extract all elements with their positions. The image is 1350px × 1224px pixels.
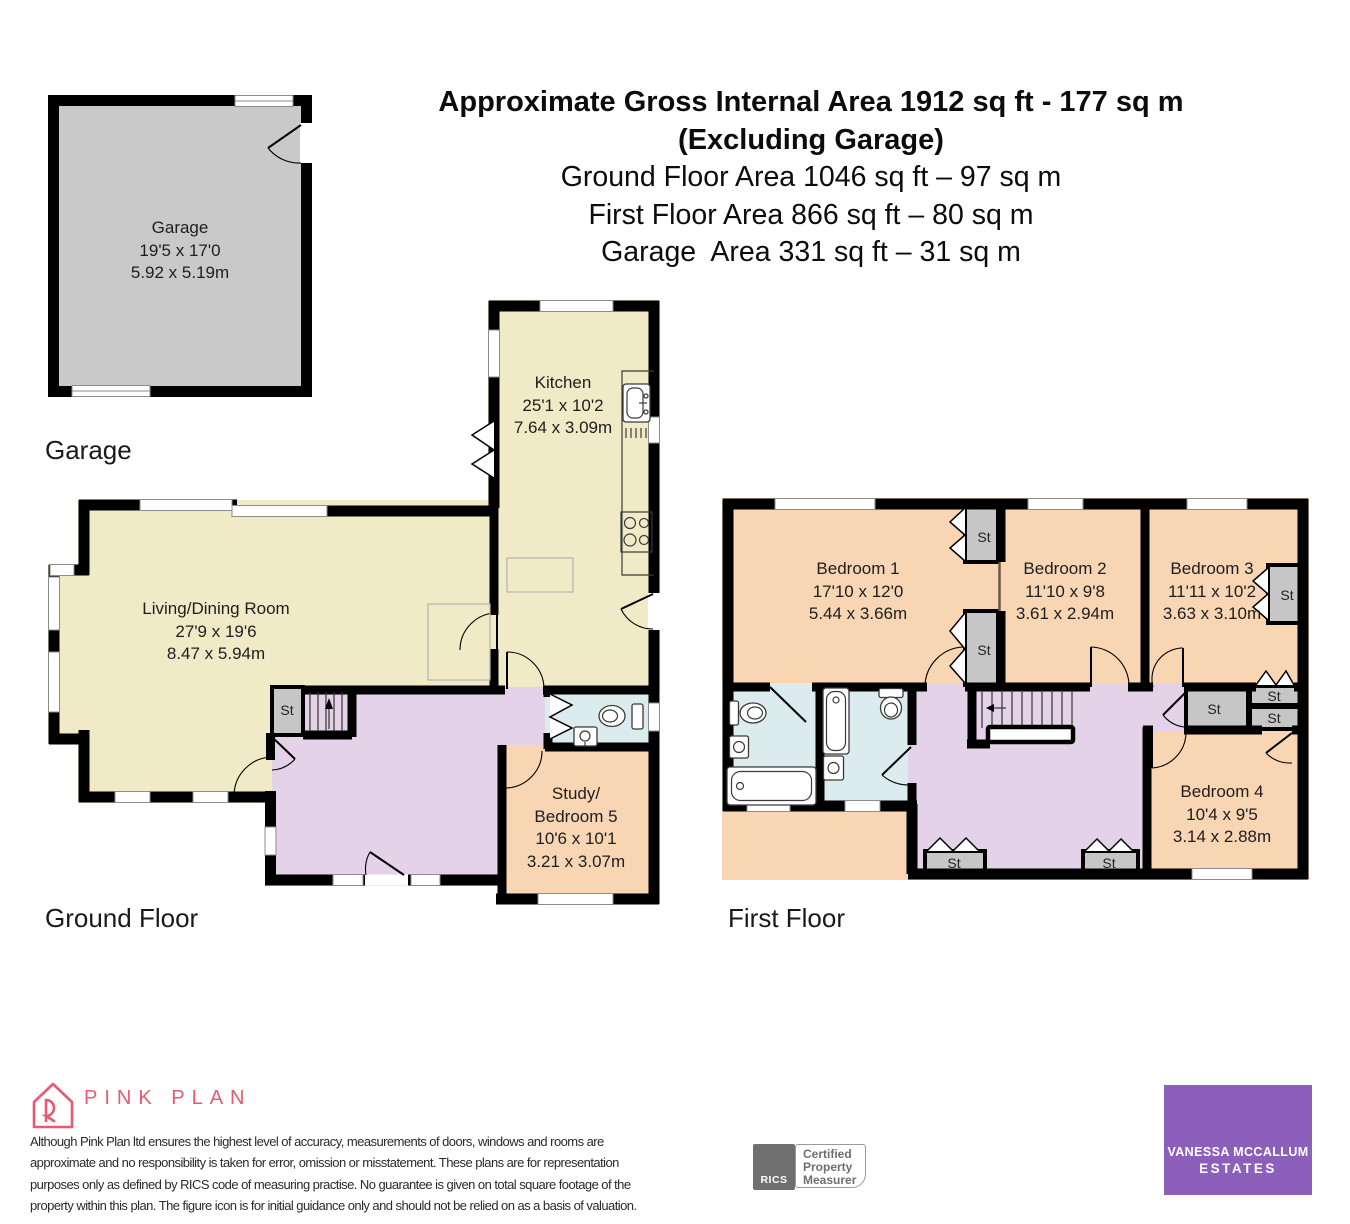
bedroom4-label: Bedroom 4 10'4 x 9'5 3.14 x 2.88m xyxy=(1173,781,1271,849)
floorplan-page: Approximate Gross Internal Area 1912 sq … xyxy=(0,0,1350,1224)
gross-area-line: Approximate Gross Internal Area 1912 sq … xyxy=(411,84,1211,122)
kitchen-label: Kitchen 25'1 x 10'2 7.64 x 3.09m xyxy=(514,372,612,440)
pink-plan-brand: PINK PLAN xyxy=(84,1087,251,1110)
storage-label: St xyxy=(280,702,293,718)
disclaimer: Although Pink Plan ltd ensures the highe… xyxy=(30,1131,637,1216)
study-bedroom5-label: Study/ Bedroom 5 10'6 x 10'1 3.21 x 3.07… xyxy=(527,783,625,873)
storage-label: St xyxy=(1280,587,1293,603)
ensuite-bath-icon xyxy=(727,767,816,805)
bathroom-sink-icon xyxy=(824,756,844,780)
ground-floor-caption: Ground Floor xyxy=(45,903,198,934)
ground-floor-area-line: Ground Floor Area 1046 sq ft – 97 sq m xyxy=(411,159,1211,197)
kitchen-floor xyxy=(488,300,660,692)
agency-logo: VANESSA MCCALLUM ESTATES xyxy=(1164,1085,1312,1195)
garage-area-line: Garage Area 331 sq ft – 31 sq m xyxy=(411,234,1211,272)
living-dining-label: Living/Dining Room 27'9 x 19'6 8.47 x 5.… xyxy=(142,598,289,666)
ensuite-toilet-icon xyxy=(730,701,767,725)
bedroom2-label: Bedroom 2 11'10 x 9'8 3.61 x 2.94m xyxy=(1016,558,1114,626)
bedroom1-label: Bedroom 1 17'10 x 12'0 5.44 x 3.66m xyxy=(809,558,907,626)
storage-label: St xyxy=(947,855,960,871)
bathroom-toilet-icon xyxy=(879,689,903,720)
rics-certified-box: Certified Property Measurer xyxy=(795,1144,866,1188)
wc-sink-icon xyxy=(574,727,597,746)
storage-label: St xyxy=(1267,710,1280,726)
ensuite-sink-icon xyxy=(730,736,749,758)
storage-label: St xyxy=(1267,688,1280,704)
first-floor-caption: First Floor xyxy=(728,903,845,934)
bedroom3-label: Bedroom 3 11'11 x 10'2 3.63 x 3.10m xyxy=(1163,558,1261,626)
area-summary: Approximate Gross Internal Area 1912 sq … xyxy=(411,84,1211,272)
storage-label: St xyxy=(1207,701,1220,717)
garage-room-label: Garage 19'5 x 17'0 5.92 x 5.19m xyxy=(131,217,229,285)
storage-label: St xyxy=(977,642,990,658)
bathroom-bath-icon xyxy=(823,688,849,754)
banister xyxy=(988,727,1073,742)
garage-caption: Garage xyxy=(45,435,132,466)
excluding-garage-line: (Excluding Garage) xyxy=(411,122,1211,160)
pink-plan-logo-icon xyxy=(34,1084,72,1127)
storage-label: St xyxy=(1102,855,1115,871)
storage-label: St xyxy=(977,529,990,545)
first-floor-area-line: First Floor Area 866 sq ft – 80 sq m xyxy=(411,197,1211,235)
rics-badge: RICS Certified Property Measurer xyxy=(753,1144,869,1190)
